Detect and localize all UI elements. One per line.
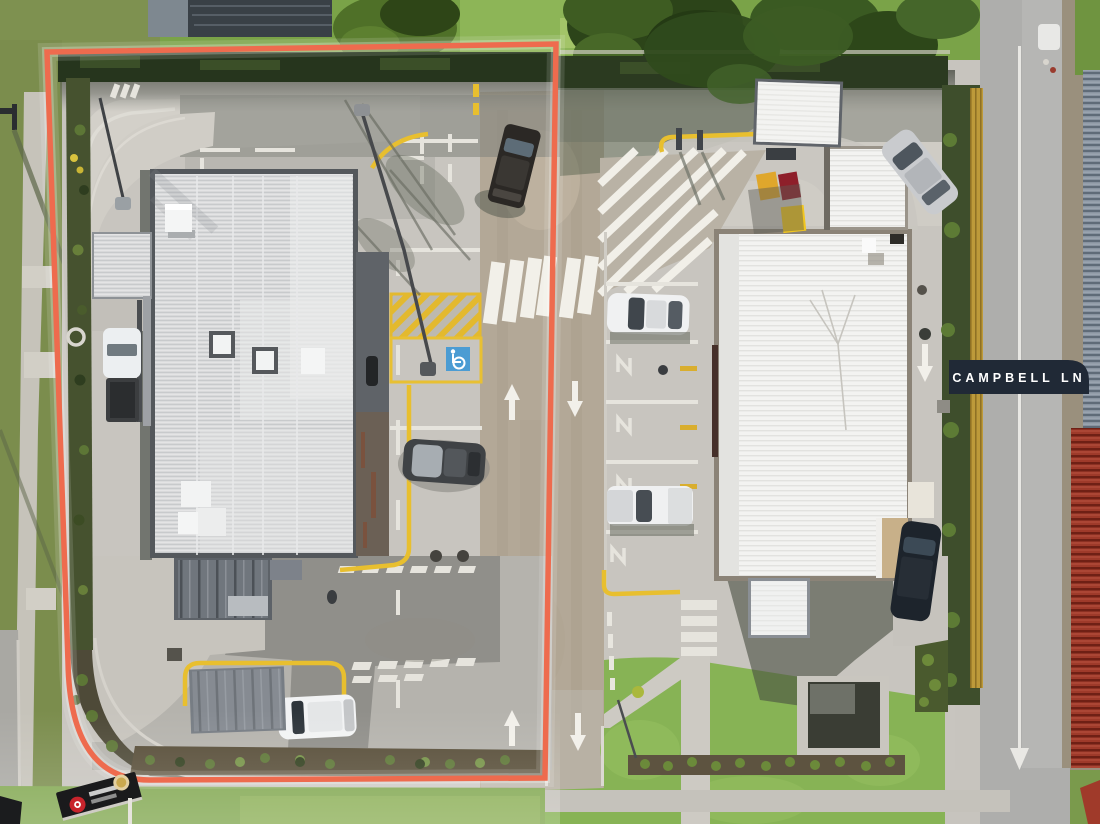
svg-text:CAMPBELL LN: CAMPBELL LN <box>952 371 1085 385</box>
